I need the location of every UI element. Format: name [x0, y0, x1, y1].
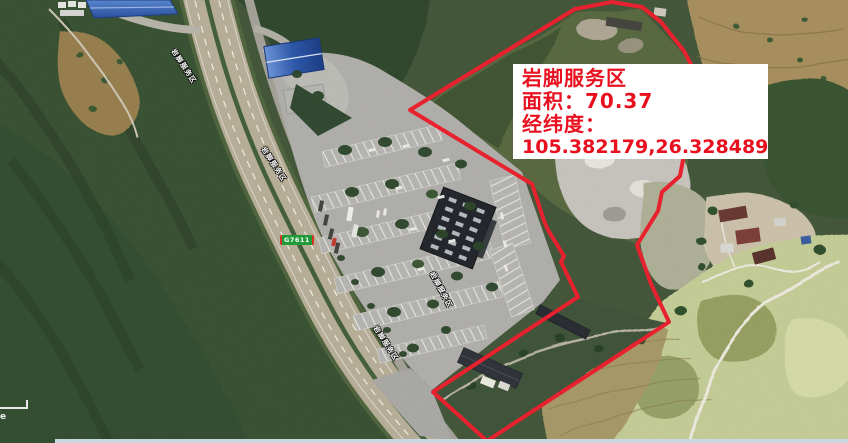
info-area-label: 面积：	[522, 89, 585, 113]
info-area-value: 70.37	[585, 89, 653, 113]
info-coord-label: 经纬度：	[522, 113, 759, 136]
info-title: 岩脚服务区	[522, 67, 759, 90]
highway-shield-g7611: G7611	[280, 235, 314, 245]
info-coord-value: 105.382179,26.328489	[522, 136, 759, 159]
map-scale-text: e	[0, 412, 6, 422]
map-viewport: 岩脚服务区 面积：70.37 经纬度： 105.382179,26.328489…	[0, 0, 848, 443]
map-scale-bar	[0, 400, 28, 409]
info-box: 岩脚服务区 面积：70.37 经纬度： 105.382179,26.328489	[513, 64, 768, 159]
bottom-window-edge	[55, 439, 848, 443]
info-area: 面积：70.37	[522, 90, 759, 113]
